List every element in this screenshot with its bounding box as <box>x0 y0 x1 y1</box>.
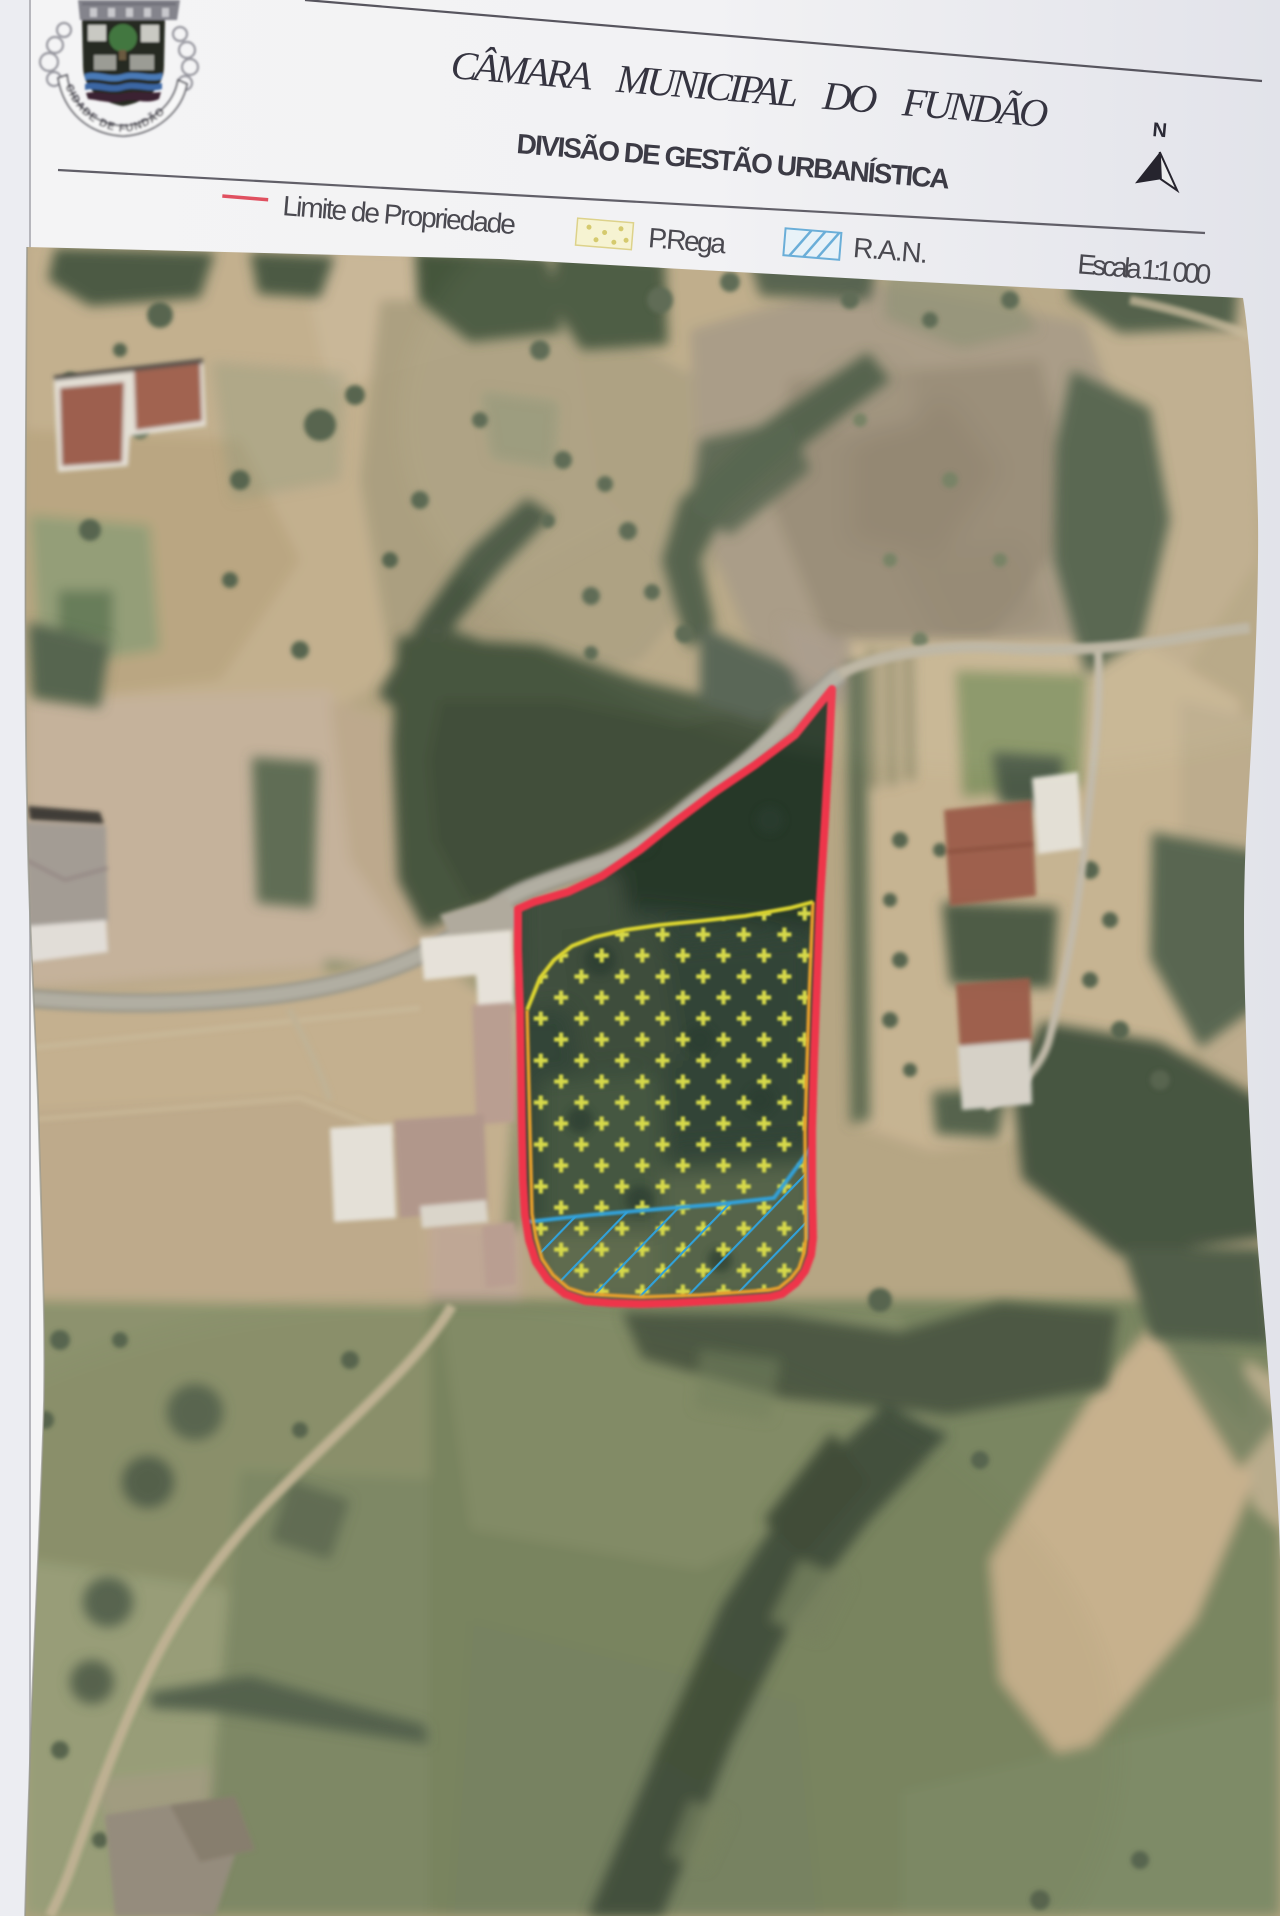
svg-text:R.A.N.: R.A.N. <box>852 232 929 269</box>
svg-text:N: N <box>1152 119 1168 142</box>
svg-text:P.Rega: P.Rega <box>647 222 728 259</box>
